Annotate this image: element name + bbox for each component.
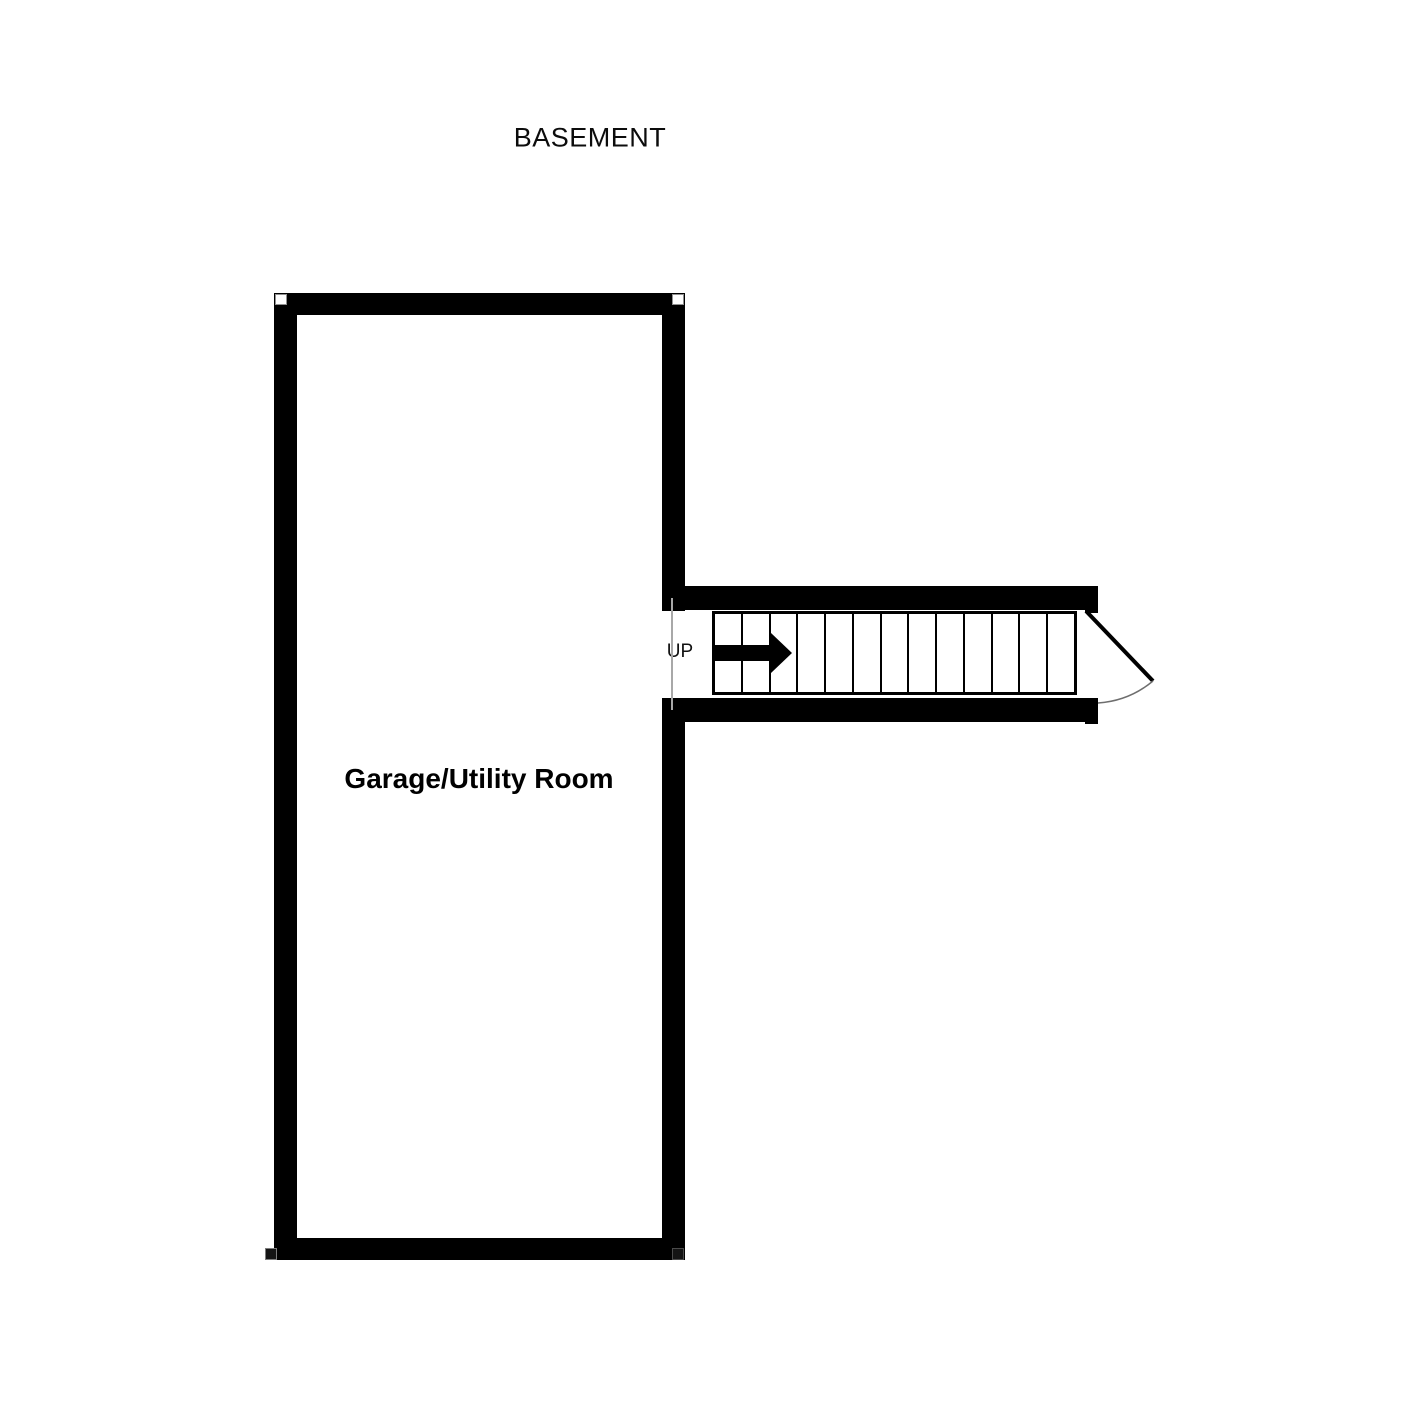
floor-plan-canvas: BASEMENT Garage/Utility Room UP xyxy=(0,0,1417,1417)
stair-tread xyxy=(993,614,1021,692)
room-wall-right-lower xyxy=(662,698,685,1260)
corridor-wall-bottom xyxy=(662,698,1098,722)
up-arrow-shaft xyxy=(713,645,771,661)
up-arrow-head-icon xyxy=(771,633,792,673)
stair-tread xyxy=(826,614,854,692)
stair-tread xyxy=(854,614,882,692)
stair-tread xyxy=(1048,614,1074,692)
room-wall-left xyxy=(274,293,297,1260)
corner-node-bottom-left xyxy=(265,1248,277,1260)
corner-node-bottom-right xyxy=(672,1248,684,1260)
room-wall-right-upper xyxy=(662,293,685,611)
corridor-wall-bottom-end-cap xyxy=(1085,700,1098,724)
plan-title: BASEMENT xyxy=(514,123,667,154)
stair-tread xyxy=(1020,614,1048,692)
door-swing-arc xyxy=(1098,681,1153,703)
stair-tread xyxy=(937,614,965,692)
corner-node-top-left xyxy=(275,294,287,305)
stair-tread xyxy=(909,614,937,692)
stair-opening-line xyxy=(671,598,673,710)
corridor-wall-top-end-cap xyxy=(1085,586,1098,613)
stair-tread xyxy=(798,614,826,692)
door-leaf xyxy=(1086,611,1153,681)
corridor-wall-top xyxy=(662,586,1098,610)
room-wall-top xyxy=(274,293,685,315)
room-label-garage-utility: Garage/Utility Room xyxy=(344,763,613,795)
room-wall-bottom xyxy=(274,1238,685,1260)
stair-tread xyxy=(882,614,910,692)
corner-node-top-right xyxy=(672,294,684,305)
stair-tread xyxy=(965,614,993,692)
